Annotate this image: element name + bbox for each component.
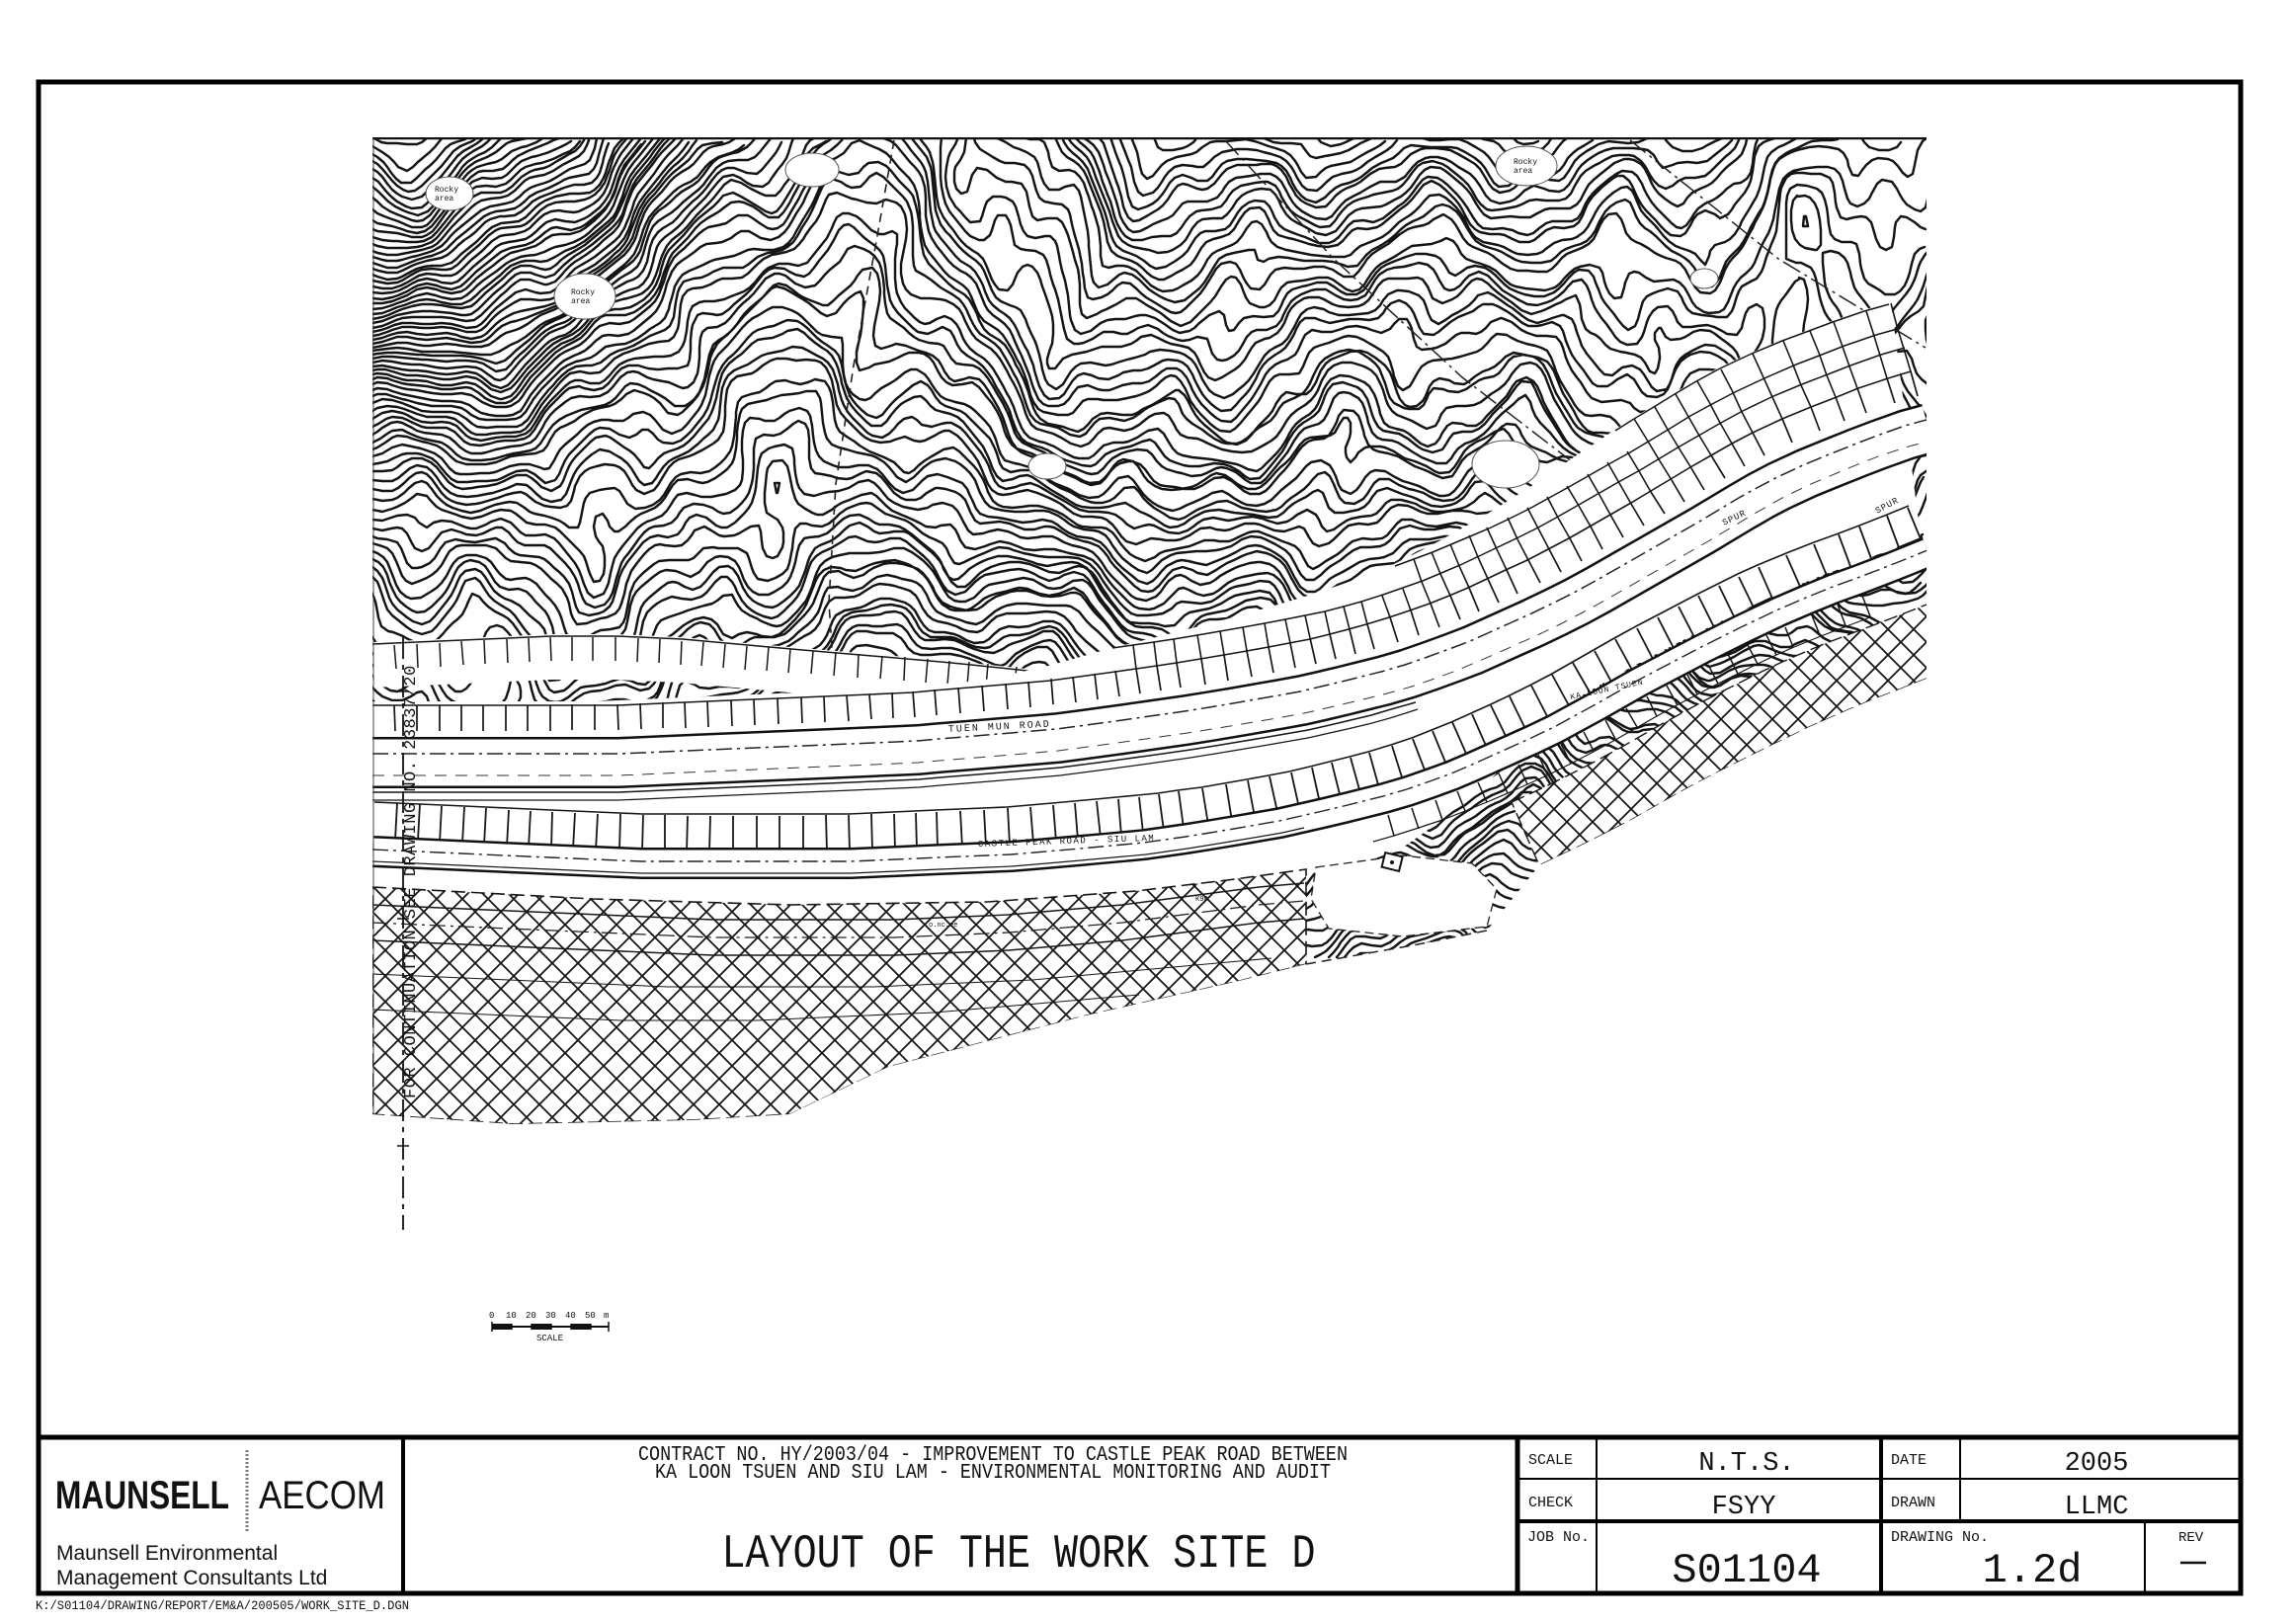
svg-text:FSYY: FSYY	[1712, 1493, 1776, 1522]
svg-text:Management Consultants Ltd: Management Consultants Ltd	[56, 1567, 327, 1589]
svg-text:MAUNSELL: MAUNSELL	[55, 1474, 229, 1517]
svg-text:10: 10	[506, 1311, 517, 1321]
svg-text:30: 30	[545, 1311, 556, 1321]
svg-text:S01104: S01104	[1672, 1547, 1821, 1594]
svg-text:N.T.S.: N.T.S.	[1698, 1449, 1794, 1479]
svg-text:20: 20	[526, 1311, 536, 1321]
svg-text:REV: REV	[2178, 1530, 2204, 1546]
svg-text:CHECK: CHECK	[1528, 1495, 1573, 1511]
svg-text:JOB No.: JOB No.	[1527, 1529, 1590, 1546]
svg-text:0: 0	[489, 1311, 494, 1321]
svg-text:DRAWN: DRAWN	[1891, 1495, 1935, 1511]
svg-text:40: 40	[565, 1311, 576, 1321]
svg-text:Rocky: Rocky	[435, 186, 458, 195]
svg-text:SCALE: SCALE	[536, 1334, 563, 1343]
svg-text:LLMC: LLMC	[2065, 1493, 2129, 1522]
svg-text:FOR CONTINUATION SEE DRAWING N: FOR CONTINUATION SEE DRAWING NO. 23837/2…	[402, 665, 421, 1098]
svg-text:DRAWING No.: DRAWING No.	[1891, 1529, 1989, 1546]
svg-text:area: area	[571, 297, 590, 306]
svg-text:K:/S01104/DRAWING/REPORT/EM&A/: K:/S01104/DRAWING/REPORT/EM&A/200505/WOR…	[36, 1598, 409, 1613]
svg-text:AECOM: AECOM	[259, 1474, 385, 1517]
svg-text:o.nc.ee: o.nc.ee	[929, 922, 957, 930]
svg-text:area: area	[435, 195, 453, 203]
svg-text:1.2d: 1.2d	[1983, 1547, 2083, 1594]
svg-text:Rocky: Rocky	[571, 288, 595, 297]
svg-text:K98: K98	[1195, 896, 1208, 904]
svg-text:2005: 2005	[2065, 1449, 2129, 1479]
svg-text:DATE: DATE	[1891, 1452, 1927, 1469]
svg-text:Rocky: Rocky	[1514, 158, 1537, 167]
svg-text:LAYOUT OF THE WORK SITE D: LAYOUT OF THE WORK SITE D	[722, 1528, 1316, 1582]
svg-text:50: 50	[585, 1311, 596, 1321]
svg-text:KA LOON TSUEN AND SIU LAM - EN: KA LOON TSUEN AND SIU LAM - ENVIRONMENTA…	[655, 1462, 1331, 1485]
svg-text:SCALE: SCALE	[1528, 1452, 1573, 1469]
svg-text:m: m	[604, 1311, 609, 1321]
svg-text:Maunsell Environmental: Maunsell Environmental	[56, 1542, 278, 1565]
svg-text:area: area	[1514, 167, 1532, 176]
